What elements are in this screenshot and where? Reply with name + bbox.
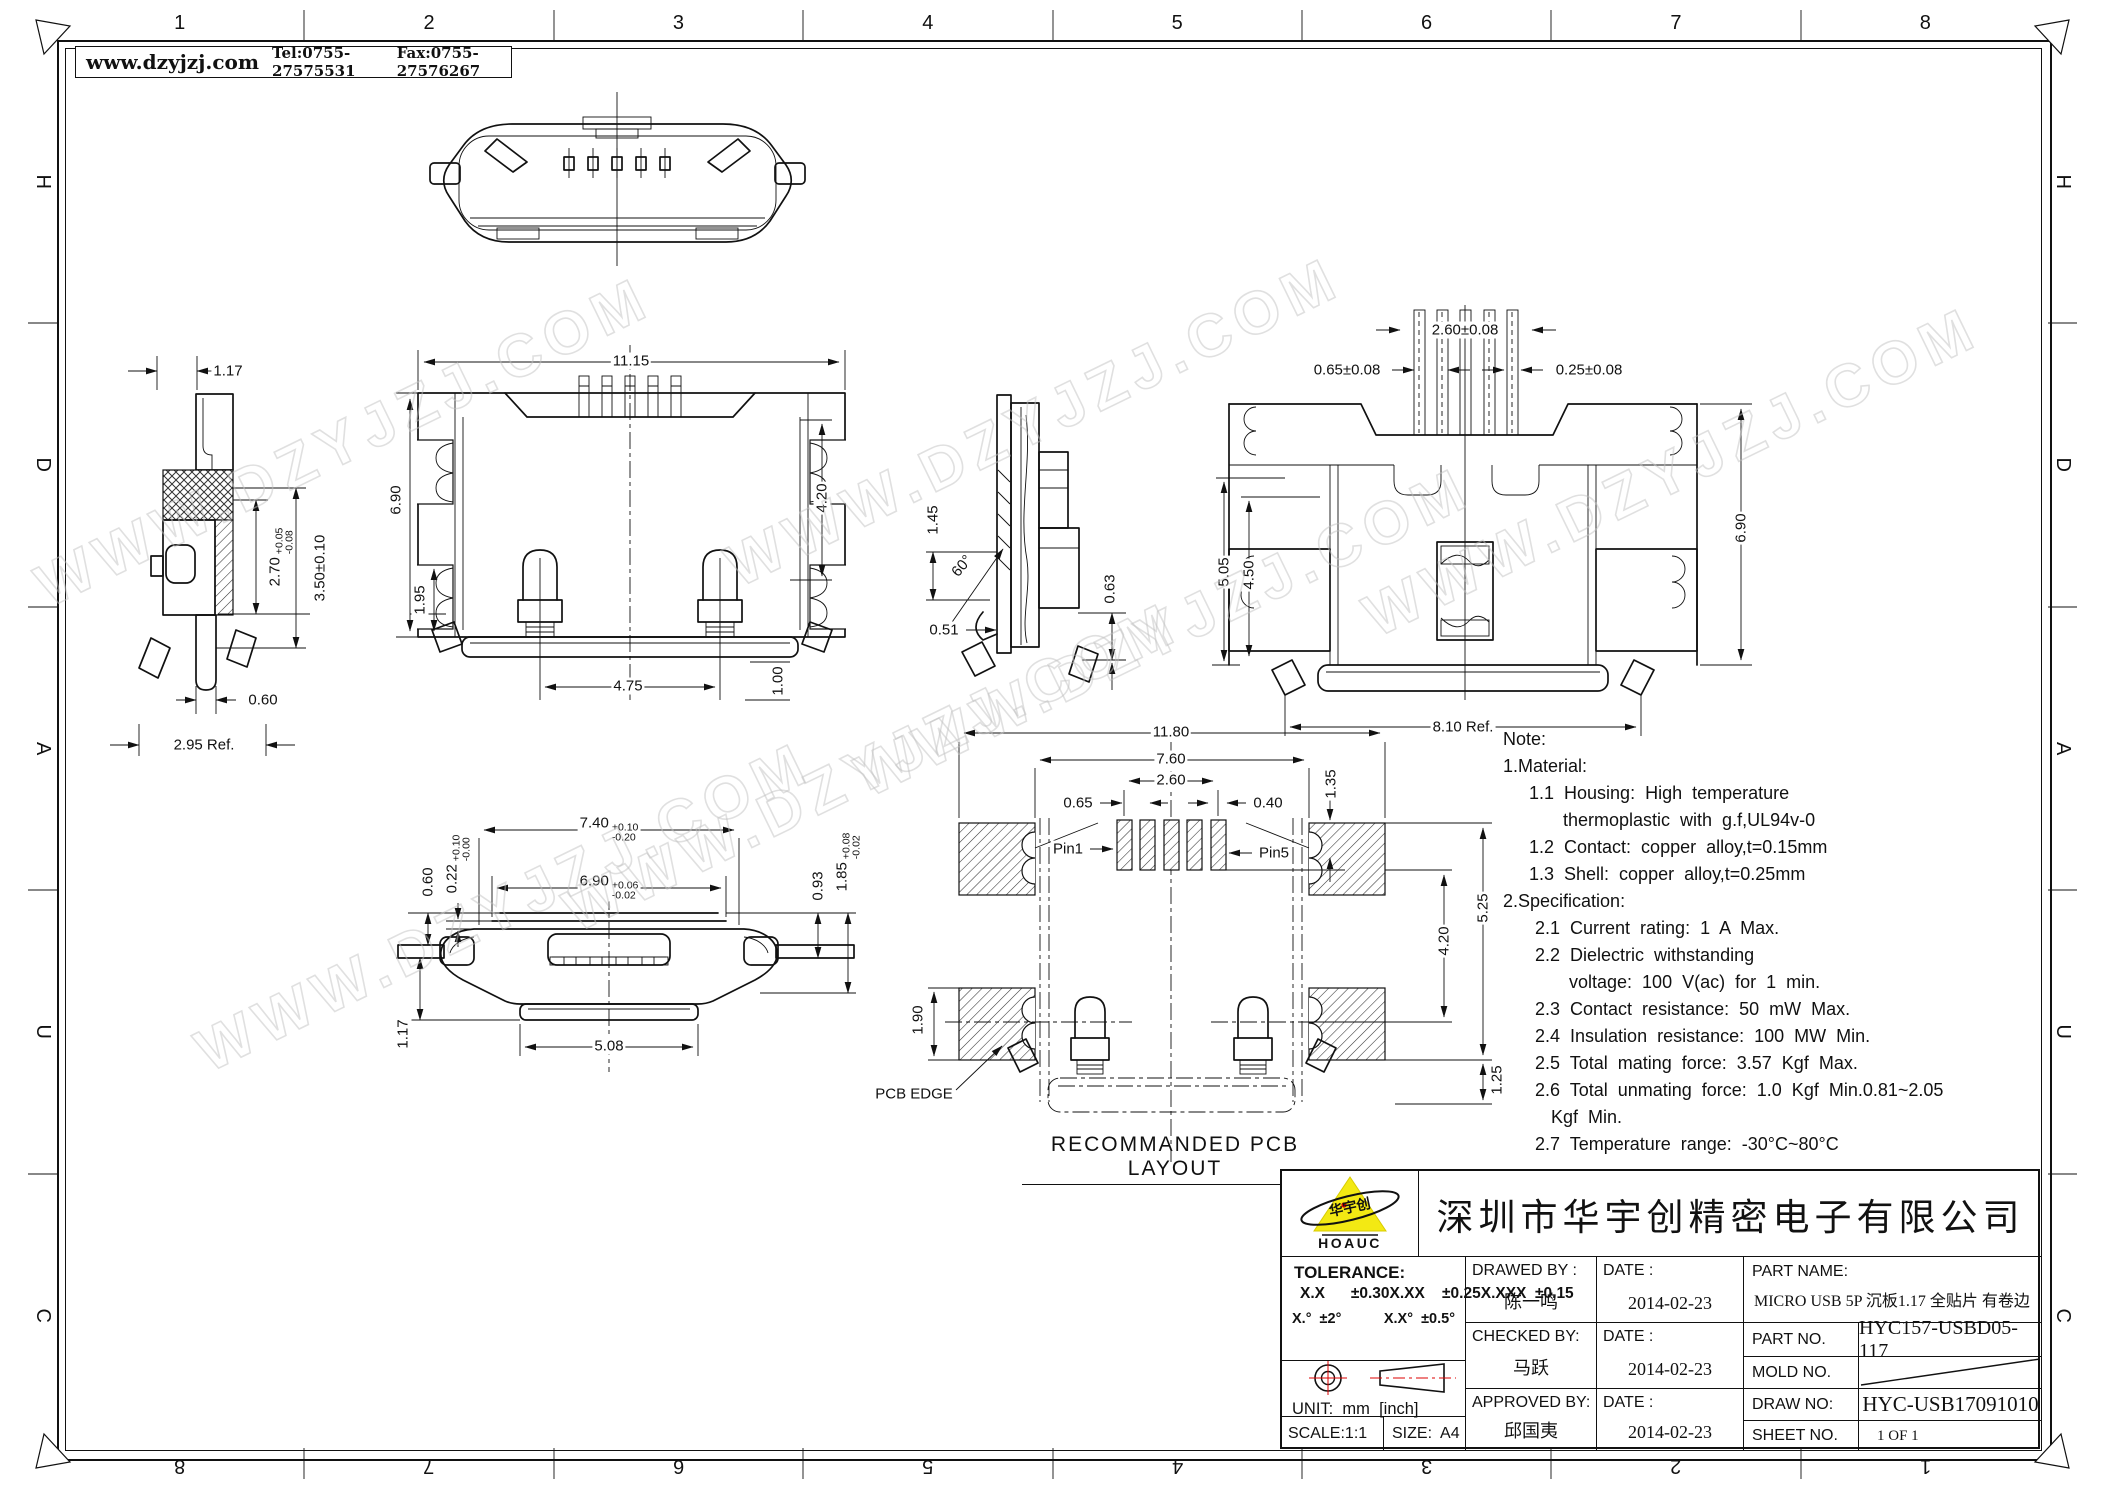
- zone-number: 3: [1302, 1450, 1551, 1482]
- note-line: 2.6 Total unmating force: 1.0 Kgf Min.0.…: [1503, 1077, 2043, 1104]
- pcb-edge-label: PCB EDGE: [873, 1086, 955, 1103]
- dim-pcb-d1: 11.80: [1151, 724, 1191, 741]
- dim-front-right: 4.20: [814, 481, 831, 514]
- zone-letter: U: [0, 1017, 184, 1046]
- note-line: 1.2 Contact: copper alloy,t=0.15mm: [1503, 834, 2043, 861]
- note-line: 2.5 Total mating force: 3.57 Kgf Max.: [1503, 1050, 2043, 1077]
- checked-by-name: 马跃: [1466, 1354, 1596, 1380]
- dim-bottom-d7: 1.17: [395, 1017, 412, 1050]
- dim-pcb-d3: 2.60: [1154, 772, 1187, 789]
- dim-side-width: 1.17: [211, 363, 244, 380]
- draw-no-value: HYC-USB17091010: [1862, 1392, 2038, 1417]
- ruler-right: HDAUC: [2048, 40, 2077, 1457]
- dim-back-topleft: 0.65±0.08: [1312, 362, 1383, 379]
- drawing-sheet: 12345678 87654321 HDAUC HDAUC www.dzyjzj…: [0, 0, 2105, 1488]
- zone-letter: C: [0, 1301, 184, 1330]
- ruler-left: HDAUC: [28, 40, 57, 1457]
- dim-bottom-d3: 0.60: [420, 865, 437, 898]
- scale-cell: SCALE:1:1: [1282, 1417, 1384, 1451]
- dim-bottom-d1: 7.40+0.10-0.20: [578, 815, 641, 844]
- back-view-drawing: [1212, 305, 1752, 736]
- zone-number: 8: [1801, 8, 2050, 38]
- note-line: 2.3 Contact resistance: 50 mW Max.: [1503, 996, 2043, 1023]
- ruler-bottom: 87654321: [55, 1450, 2050, 1482]
- dim-bottom-d2: 6.90+0.06-0.02: [578, 873, 641, 902]
- dim-section-c: 0.63: [1102, 572, 1119, 605]
- zone-letter: D: [0, 451, 184, 480]
- zone-number: 6: [1302, 8, 1551, 38]
- dim-back-top: 2.60±0.08: [1430, 322, 1501, 339]
- drawed-by-label: DRAWED BY :: [1472, 1262, 1577, 1280]
- note-line: voltage: 100 V(ac) for 1 min.: [1503, 969, 2043, 996]
- zone-number: 5: [803, 1450, 1052, 1482]
- dim-pcb-d6: 1.35: [1323, 767, 1340, 800]
- part-no-label-cell: PART NO.: [1744, 1323, 1859, 1357]
- pcb-pin5-label: Pin5: [1257, 845, 1291, 862]
- dim-side-depth2: 3.50±0.10: [312, 533, 329, 604]
- date-label: DATE :: [1603, 1394, 1653, 1412]
- zone-number: 7: [1551, 8, 1800, 38]
- unit-cell: UNIT: mm [inch]: [1282, 1361, 1466, 1417]
- sheet-no-value: 1 OF 1: [1877, 1428, 1919, 1445]
- note-line: 1.3 Shell: copper alloy,t=0.25mm: [1503, 861, 2043, 888]
- checked-by-label: CHECKED BY:: [1472, 1328, 1580, 1346]
- title-block: 华宇创 HOAUC 深圳市华宇创精密电子有限公司 TOLERANCE: X.X …: [1280, 1169, 2040, 1449]
- tolerance-angle1: X.° ±2°: [1292, 1311, 1341, 1327]
- mold-no-value-cell: [1859, 1357, 2042, 1389]
- zone-number: 6: [554, 1450, 803, 1482]
- note-line: 2.2 Dielectric withstanding: [1503, 942, 2043, 969]
- dim-bottom-d5: 0.93: [810, 869, 827, 902]
- zone-number: 4: [1053, 1450, 1302, 1482]
- tolerance-angle2: X.X° ±0.5°: [1384, 1311, 1455, 1327]
- part-no-value: HYC157-USBD05-117: [1859, 1317, 2042, 1363]
- drawed-date-cell: DATE : 2014-02-23: [1597, 1257, 1744, 1323]
- dim-bottom-d4: 0.22+0.10-0.00: [444, 833, 473, 896]
- dim-pcb-d4: 0.65: [1061, 795, 1094, 812]
- zone-number: 4: [803, 8, 1052, 38]
- tolerance-row: X.X ±0.30: [1300, 1285, 1390, 1302]
- approved-by-name: 邱国夷: [1466, 1417, 1596, 1443]
- zone-number: 3: [554, 8, 803, 38]
- mold-no-diagonal: [1859, 1357, 2042, 1387]
- note-line: 2.7 Temperature range: -30°C~80°C: [1503, 1131, 2043, 1158]
- dim-back-bottom: 8.10 Ref.: [1431, 719, 1496, 736]
- projection-symbol: [1282, 1361, 1466, 1395]
- drawed-by-cell: DRAWED BY : 陈一鸣: [1466, 1257, 1597, 1323]
- part-no-value-cell: HYC157-USBD05-117: [1859, 1323, 2042, 1357]
- note-line: 2.1 Current rating: 1 A Max.: [1503, 915, 2043, 942]
- dim-side-pin: 0.60: [246, 692, 279, 709]
- draw-no-label: DRAW NO:: [1752, 1396, 1833, 1414]
- mold-no-label-cell: MOLD NO.: [1744, 1357, 1859, 1389]
- zone-letter: D: [1921, 451, 2105, 480]
- dim-front-foot: 1.00: [770, 664, 787, 697]
- part-name-label: PART NAME:: [1744, 1257, 2042, 1281]
- company-logo: 华宇创 HOAUC: [1282, 1171, 1419, 1257]
- scale-label: SCALE:1:1: [1288, 1425, 1367, 1443]
- dim-pcb-d2: 7.60: [1154, 751, 1187, 768]
- header-tel: Tel:0755-27575531: [272, 44, 384, 80]
- header-contact-bar: www.dzyjzj.com Tel:0755-27575531 Fax:075…: [75, 46, 512, 78]
- zone-letter: A: [0, 734, 184, 763]
- pcb-pin1-label: Pin1: [1051, 841, 1085, 858]
- checked-date-cell: DATE : 2014-02-23: [1597, 1323, 1744, 1389]
- zone-number: 1: [1801, 1450, 2050, 1482]
- zone-letter: H: [1921, 167, 2105, 196]
- pcb-layout-drawing: [928, 733, 1492, 1162]
- dim-section-a: 1.45: [925, 503, 942, 536]
- zone-number: 7: [304, 1450, 553, 1482]
- note-line: 2.4 Insulation resistance: 100 MW Min.: [1503, 1023, 2043, 1050]
- dim-section-b: 0.51: [927, 622, 960, 639]
- approved-by-cell: APPROVED BY: 邱国夷: [1466, 1389, 1597, 1451]
- mold-no-label: MOLD NO.: [1752, 1364, 1831, 1382]
- part-no-label: PART NO.: [1752, 1331, 1826, 1349]
- website-link[interactable]: www.dzyjzj.com: [86, 50, 259, 74]
- dim-front-posts: 4.75: [611, 678, 644, 695]
- zone-number: 2: [1551, 1450, 1800, 1482]
- notes-block: Note:1.Material:1.1 Housing: High temper…: [1503, 726, 2043, 1158]
- dim-back-left1: 5.05: [1216, 555, 1233, 588]
- logo-cell: 华宇创 HOAUC: [1282, 1171, 1419, 1257]
- sheet-no-value-cell: 1 OF 1: [1859, 1421, 2042, 1451]
- tolerance-cell: TOLERANCE: X.X ±0.30X.XX ±0.25X.XXX ±0.1…: [1282, 1257, 1466, 1361]
- draw-no-value-cell: HYC-USB17091010: [1859, 1389, 2042, 1421]
- svg-text:HOAUC: HOAUC: [1318, 1235, 1382, 1251]
- front-view-drawing: [396, 345, 846, 700]
- section-view-drawing: [926, 395, 1126, 690]
- part-name-cell: PART NAME: MICRO USB 5P 沉板1.17 全贴片 有卷边: [1744, 1257, 2042, 1323]
- header-fax: Fax:0755-27576267: [397, 44, 511, 80]
- zone-number: 8: [55, 1450, 304, 1482]
- approved-date-cell: DATE : 2014-02-23: [1597, 1389, 1744, 1451]
- note-line: 2.Specification:: [1503, 888, 2043, 915]
- dim-pcb-d5: 0.40: [1251, 795, 1284, 812]
- zone-letter: H: [0, 167, 184, 196]
- dim-pcb-d8: 5.25: [1475, 891, 1492, 924]
- size-cell: SIZE: A4: [1384, 1417, 1466, 1451]
- dim-bottom-d6: 1.85+0.08-0.02: [834, 831, 863, 894]
- dim-back-right: 6.90: [1733, 511, 1750, 544]
- zone-number: 1: [55, 8, 304, 38]
- zone-number: 2: [304, 8, 553, 38]
- sheet-no-label-cell: SHEET NO.: [1744, 1421, 1859, 1451]
- note-line: thermoplastic with g.f,UL94v-0: [1503, 807, 2043, 834]
- tolerance-label: TOLERANCE:: [1282, 1257, 1465, 1285]
- date-label: DATE :: [1603, 1262, 1653, 1280]
- dim-back-topright: 0.25±0.08: [1554, 362, 1625, 379]
- dim-pcb-d9: 1.90: [910, 1003, 927, 1036]
- tolerance-rows: X.X ±0.30X.XX ±0.25X.XXX ±0.15: [1282, 1285, 1465, 1303]
- note-line: 1.Material:: [1503, 753, 2043, 780]
- size-label: SIZE: A4: [1392, 1425, 1460, 1443]
- checked-by-cell: CHECKED BY: 马跃: [1466, 1323, 1597, 1389]
- checked-date: 2014-02-23: [1597, 1359, 1743, 1380]
- drawed-date: 2014-02-23: [1597, 1293, 1743, 1314]
- date-label: DATE :: [1603, 1328, 1653, 1346]
- dim-front-width: 11.15: [611, 353, 651, 370]
- note-line: Kgf Min.: [1503, 1104, 2043, 1131]
- sheet-no-label: SHEET NO.: [1752, 1427, 1838, 1445]
- dim-side-depth1: 2.70+0.05-0.08: [267, 526, 296, 589]
- note-line: Note:: [1503, 726, 2043, 753]
- dim-pcb-d7: 4.20: [1436, 924, 1453, 957]
- dim-bottom-d8: 5.08: [592, 1038, 625, 1055]
- dim-back-left2: 4.50: [1241, 558, 1258, 591]
- company-name: 深圳市华宇创精密电子有限公司: [1419, 1171, 2042, 1257]
- zone-number: 5: [1053, 8, 1302, 38]
- drawed-by-name: 陈一鸣: [1466, 1288, 1596, 1314]
- ruler-top: 12345678: [55, 8, 2050, 38]
- draw-no-label-cell: DRAW NO:: [1744, 1389, 1859, 1421]
- approved-date: 2014-02-23: [1597, 1422, 1743, 1443]
- dim-side-ref: 2.95 Ref.: [172, 737, 237, 754]
- dim-front-height2: 1.95: [412, 583, 429, 616]
- dim-front-height: 6.90: [388, 483, 405, 516]
- top-view-drawing: [430, 92, 805, 266]
- part-name-value: MICRO USB 5P 沉板1.17 全贴片 有卷边: [1744, 1281, 2042, 1311]
- approved-by-label: APPROVED BY:: [1472, 1394, 1590, 1412]
- note-line: 1.1 Housing: High temperature: [1503, 780, 2043, 807]
